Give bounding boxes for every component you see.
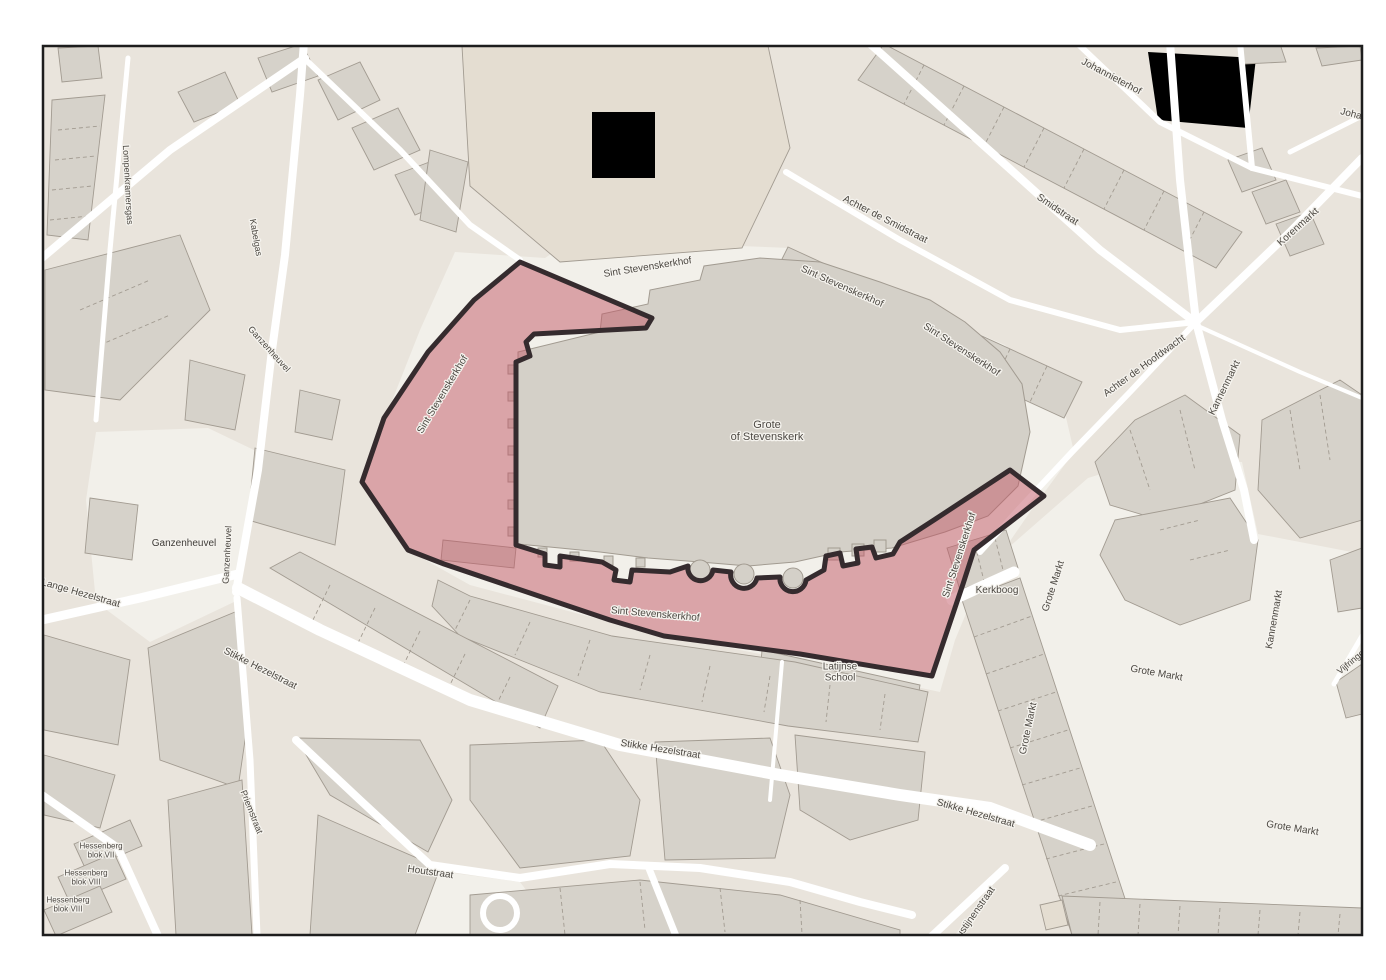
map-label-kerkboog: Kerkboog xyxy=(976,585,1019,596)
map-canvas[interactable]: Groteof StevenskerkSint StevenskerkhofSi… xyxy=(0,0,1386,980)
map-label-latijnse-school: LatijnseSchool xyxy=(823,662,858,684)
map-label-ganzenheuvel-place: Ganzenheuvel xyxy=(152,538,217,549)
sand-patch xyxy=(592,112,655,178)
